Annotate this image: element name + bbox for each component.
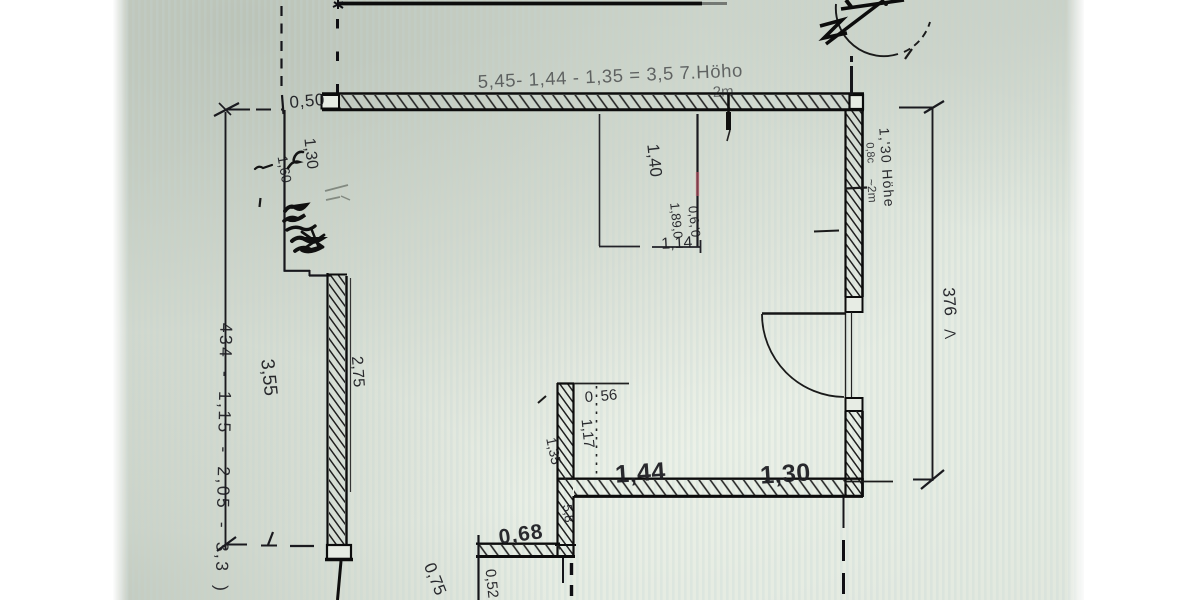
svg-text:⋀: ⋀ [944, 327, 959, 339]
svg-text:1,30: 1,30 [300, 137, 320, 170]
svg-text:5,8: 5,8 [560, 503, 577, 523]
svg-text:376: 376 [939, 287, 960, 317]
svg-text:2,75: 2,75 [348, 356, 367, 388]
svg-text:3,55: 3,55 [256, 358, 281, 397]
svg-text:0,8c: 0,8c [863, 142, 876, 164]
svg-text:1,14: 1,14 [661, 234, 693, 253]
svg-text:1,17: 1,17 [577, 418, 597, 449]
svg-text:0,52: 0,52 [481, 568, 501, 599]
svg-text:0: 0 [584, 389, 593, 406]
svg-text:0,50: 0,50 [289, 90, 326, 112]
svg-text:1,30: 1,30 [759, 458, 812, 489]
svg-text:~2m: ~2m [864, 178, 880, 203]
svg-text:1,44: 1,44 [614, 457, 667, 488]
svg-text:56: 56 [600, 386, 618, 405]
svg-text:1,40: 1,40 [643, 143, 665, 178]
svg-text:2m: 2m [712, 83, 734, 101]
